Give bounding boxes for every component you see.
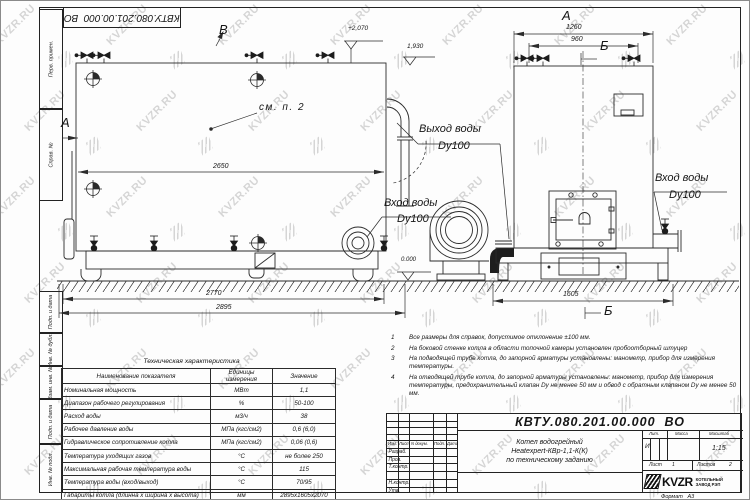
row-tkontr: Т.контр. — [389, 465, 409, 470]
view-a-front-label: А — [562, 9, 571, 22]
table-row: Габариты котла (длинна х ширина х высота… — [62, 489, 336, 500]
sheets-label: Листов — [697, 463, 715, 468]
tech-table-title: Техническая характеристика — [61, 356, 322, 368]
sheet-label: Лист — [649, 463, 662, 468]
dim-960-label: 960 — [571, 36, 583, 43]
lit-label: Лит. — [649, 432, 659, 436]
scale-value: 1:15 — [712, 445, 726, 452]
view-b-label: В — [219, 23, 228, 36]
col-ndokum: N докум. — [411, 442, 428, 446]
tech-characteristics: Техническая характеристика Наименование … — [61, 356, 322, 500]
note-item: 2На боковой стенке котла в области топоч… — [391, 345, 739, 353]
inlet-front-label-1: Вход воды — [655, 173, 708, 184]
col-header-value: Значение — [273, 369, 336, 384]
col-header-units: Единицы измерения — [211, 369, 273, 384]
kvzr-logo-text: KVZR — [662, 475, 693, 489]
frame-cell-podp-data-2: Подп. и дата — [39, 399, 63, 444]
table-row: Рабочее давление водыМПа (кгс/см2)0,6 (6… — [62, 423, 336, 436]
note-item: 1Все размеры для справок, допустимое отк… — [391, 334, 739, 342]
table-row: Температура уходящих газов°Сне более 250 — [62, 449, 336, 462]
col-list: Лист — [399, 442, 410, 446]
mass-label: Масса — [675, 432, 688, 436]
notes-list: 1Все размеры для справок, допустимое отк… — [391, 334, 739, 400]
section-b-bottom-label: Б — [604, 304, 612, 317]
elev-1930-label: 1,930 — [407, 44, 423, 51]
inlet-side-label-2: Dy100 — [397, 214, 429, 225]
elev-2070-label: +2,070 — [348, 26, 368, 33]
row-razrab: Разраб. — [389, 450, 407, 455]
col-header-name: Наименование показателя — [62, 369, 211, 384]
table-row: Гидравлическое сопротивление котлаМПа (к… — [62, 436, 336, 449]
table-row: Максимальная рабочая температура воды°С1… — [62, 463, 336, 476]
sheets-value: 2 — [729, 463, 732, 468]
drawing-sheet: KVZR.RUKVZR.RUKVZR.RUKVZR.RUKVZR.RUKVZR.… — [0, 0, 750, 500]
row-prov: Пров. — [389, 458, 402, 463]
row-utv: Утв. — [389, 489, 400, 494]
company-logo: KVZR КОТЕЛЬНЫЙ ЗАВОД РЭП — [645, 471, 741, 492]
document-name: Котел водогрейный Heatexpert-КВр-1,1-К(К… — [457, 431, 642, 471]
company-name: КОТЕЛЬНЫЙ ЗАВОД РЭП — [696, 477, 723, 487]
see-note-label: см. п. 2 — [259, 103, 305, 113]
view-a-side-label: А — [61, 116, 70, 129]
table-row: Температура воды (вход/выход)°С70/95 — [62, 476, 336, 489]
dim-1260-label: 1260 — [566, 24, 582, 31]
col-podp: Подп. — [434, 442, 445, 446]
frame-cell-inv-dubl: Инв. № дубл. — [39, 333, 63, 366]
note-item: 3На подводящей трубе котла, до запорной … — [391, 355, 739, 371]
sheet-value: 1 — [672, 463, 675, 468]
note-item: 4На отводящей трубе котла, до запорной а… — [391, 374, 739, 398]
document-designation: КВТУ.080.201.00.000 ВО — [457, 414, 743, 430]
outlet-label-2: Dy100 — [438, 141, 470, 152]
table-row: Расход водым3/ч38 — [62, 410, 336, 423]
elev-zero-label: 0.000 — [401, 257, 416, 263]
dim-1605-label: 1605 — [563, 291, 579, 298]
kvzr-logo-icon — [643, 474, 661, 489]
title-block: КВТУ.080.201.00.000 ВО Изм. Лист N докум… — [386, 413, 742, 493]
section-b-top-label: Б — [600, 39, 608, 52]
table-row: Диапазон рабочего регулирования%50-100 — [62, 397, 336, 410]
dim-2770-label: 2770 — [206, 290, 222, 297]
outlet-label-1: Выход воды — [419, 124, 481, 135]
inlet-front-label-2: Dy100 — [669, 190, 701, 201]
frame-cell-perv-primen: Перв. примен. — [39, 9, 63, 109]
dim-2895-label: 2895 — [216, 304, 232, 311]
dim-2650-label: 2650 — [213, 163, 229, 170]
frame-cell-podp-data-1: Подп. и дата — [39, 291, 63, 333]
table-row: Номинальная мощностьМВт1,1 — [62, 384, 336, 397]
lit-value: И — [645, 444, 650, 451]
col-izm: Изм. — [388, 442, 397, 446]
row-nkontr: Н.контр. — [389, 481, 410, 486]
frame-cell-sprav-no: Справ. № — [39, 109, 63, 201]
top-stamp: КВТУ.080.201.00.000 ВО — [63, 7, 181, 28]
inlet-side-label-1: Вход воды — [384, 198, 437, 209]
tech-table: Наименование показателя Единицы измерени… — [61, 368, 336, 500]
format-note: Формат А3 — [661, 494, 694, 500]
frame-cell-inv-podl: Инв. № подл. — [39, 444, 63, 493]
scale-label: Масштаб — [709, 432, 729, 436]
frame-cell-vzam-inv: Взам. инв. № — [39, 366, 63, 399]
